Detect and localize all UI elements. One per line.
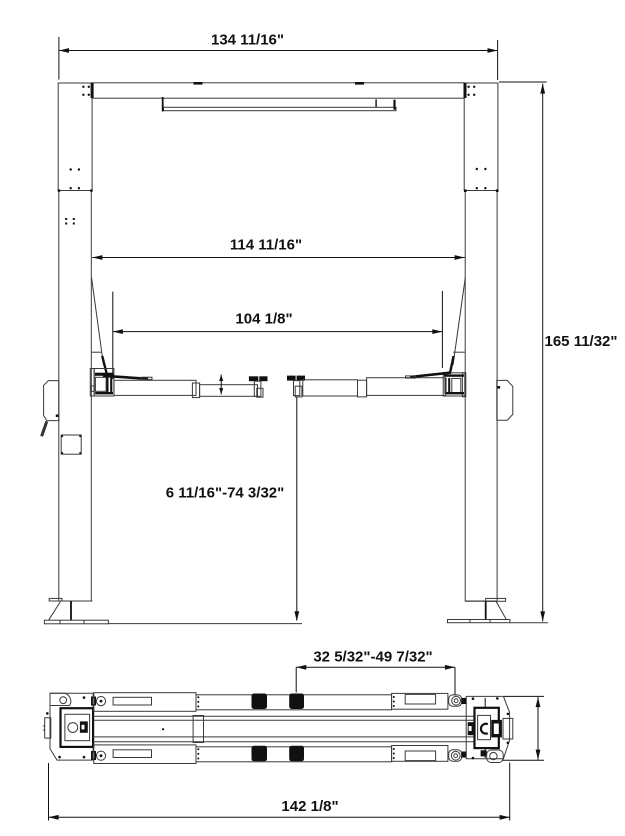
svg-text:32 5/32"-49 7/32": 32 5/32"-49 7/32" xyxy=(313,649,432,666)
svg-text:6 11/16"-74 3/32": 6 11/16"-74 3/32" xyxy=(166,485,284,502)
svg-text:104 1/8": 104 1/8" xyxy=(235,311,292,328)
svg-text:165 11/32": 165 11/32" xyxy=(545,333,618,350)
svg-text:142 1/8": 142 1/8" xyxy=(281,798,338,815)
svg-text:114 11/16": 114 11/16" xyxy=(230,237,302,254)
svg-text:134 11/16": 134 11/16" xyxy=(211,32,284,49)
